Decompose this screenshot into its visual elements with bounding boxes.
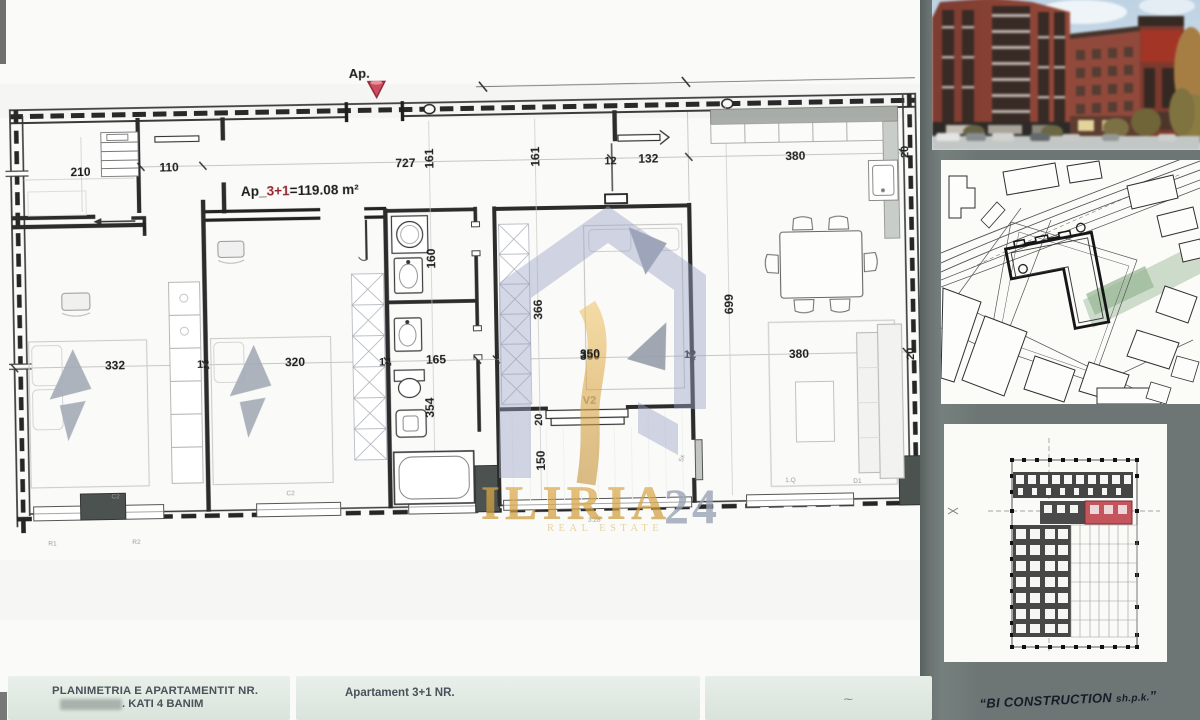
svg-text:20: 20 [533, 413, 545, 425]
svg-text:Ap_3+1=119.08 m²: Ap_3+1=119.08 m² [241, 182, 360, 199]
svg-text:210: 210 [70, 165, 91, 179]
svg-text:161: 161 [528, 146, 542, 167]
svg-text:366: 366 [531, 299, 545, 320]
svg-text:C2: C2 [286, 490, 295, 497]
svg-text:161: 161 [422, 148, 436, 169]
svg-text:150: 150 [534, 450, 548, 471]
svg-text:165: 165 [426, 352, 447, 366]
svg-text:727: 727 [395, 156, 416, 170]
svg-text:Ap.: Ap. [349, 66, 370, 81]
svg-text:354: 354 [423, 397, 437, 418]
svg-text:132: 132 [638, 151, 659, 165]
svg-text:14: 14 [379, 356, 392, 368]
svg-text:332: 332 [105, 358, 126, 372]
svg-text:380: 380 [789, 347, 810, 361]
svg-text:12: 12 [197, 359, 209, 371]
svg-text:C2: C2 [111, 493, 120, 500]
svg-text:320: 320 [285, 355, 306, 369]
svg-text:REAL ESTATE: REAL ESTATE [547, 523, 663, 534]
svg-text:380: 380 [785, 149, 806, 163]
svg-text:110: 110 [159, 160, 179, 174]
svg-text:1.Q: 1.Q [785, 477, 796, 484]
svg-text:R2: R2 [132, 539, 141, 546]
svg-text:20: 20 [905, 348, 917, 360]
svg-text:24: 24 [664, 478, 720, 534]
svg-text:350: 350 [580, 347, 601, 361]
svg-text:160: 160 [424, 248, 438, 269]
svg-text:R1: R1 [48, 541, 57, 548]
svg-text:699: 699 [722, 294, 736, 315]
svg-text:D1: D1 [853, 478, 862, 485]
